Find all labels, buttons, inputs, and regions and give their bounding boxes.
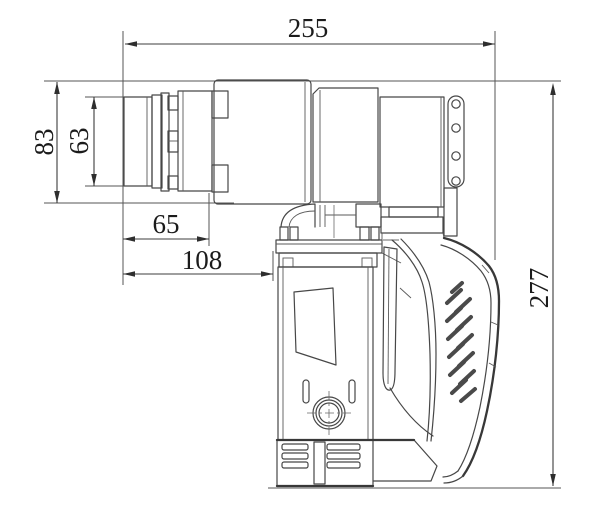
vent-hole-1 [452,100,460,108]
dimension-head-inner-height: 63 [64,97,97,186]
handle-web [390,388,433,436]
vent-slat-5 [327,453,360,459]
dim-label-head-length: 108 [182,245,223,275]
slot-left [303,380,309,403]
shell-tick-2 [491,322,498,325]
vent-slat-2 [282,453,308,459]
label-window [294,288,336,365]
dimension-overall-length: 255 [125,13,495,47]
arrow-up-icon [54,82,60,94]
drawing-canvas: 255 83 63 65 108 277 [0,0,600,516]
grip-slats [447,283,475,401]
motor-outline [380,97,444,207]
bolt-boss-4 [371,227,379,240]
vent-slat-4 [327,444,360,450]
handle [382,233,499,483]
coupling-section [313,88,378,202]
coupling-outline [313,88,378,202]
trigger-inner-line [388,249,389,384]
vent-hole-2 [452,124,460,132]
lower-body [278,267,373,440]
vent-hole-3 [452,152,460,160]
center-bar [314,442,325,484]
bolt-boss-3 [360,227,369,240]
step-notch-left [283,258,293,267]
motor-end-cap [448,96,464,187]
elbow-outer [281,204,315,227]
lower-body-outline [278,267,373,440]
grip-slat [449,344,463,357]
dimension-head-outer-height: 83 [29,82,60,203]
dim-label-head-outer-height: 83 [29,129,59,156]
dimension-head-length: 108 [123,245,273,277]
shell-tip-inner [443,471,458,477]
square-drive-outline [124,97,152,186]
arrow-down-icon [54,191,60,203]
grip-slat [461,389,475,401]
arrow-up-icon [550,83,556,95]
vent-slat-3 [282,462,308,468]
arrow-right-icon [197,236,209,242]
arrow-left-icon [123,271,135,277]
arrow-down-icon [550,474,556,486]
base-foot [373,440,437,481]
front-spindle-assembly [124,91,212,191]
slot-right [349,380,355,403]
arrow-up-icon [91,97,97,109]
trigger [383,247,397,390]
flange-band [276,240,382,253]
dim-label-head-inner-height: 63 [64,128,94,155]
bolt-boss-2 [290,227,298,240]
arrow-right-icon [261,271,273,277]
dimension-front-section-length: 65 [123,209,209,242]
dim-label-overall-height: 277 [524,268,554,309]
gear-housing [212,80,311,204]
handle-neck [381,217,443,233]
grip-slat [447,308,461,321]
grip-slat [450,362,464,375]
grip-slat [452,380,466,393]
bolt-boss-1 [280,227,288,240]
dimension-overall-height: 277 [524,83,556,486]
step-notch-right [362,258,372,267]
elbow-inner [289,211,315,227]
motor-step [389,207,438,217]
vent-hole-4 [452,177,460,185]
base-section [277,440,437,486]
arrow-down-icon [91,174,97,186]
arrow-right-icon [483,41,495,47]
technical-drawing-svg: 255 83 63 65 108 277 [0,0,600,516]
vent-slat-6 [327,462,360,468]
rear-panel [444,188,457,236]
dim-label-overall-length: 255 [288,13,329,43]
dim-label-front-section-length: 65 [153,209,180,239]
block-right [356,204,381,227]
grip-accent [400,288,411,298]
arrow-left-icon [123,236,135,242]
motor-housing [380,96,464,240]
arrow-left-icon [125,41,137,47]
vent-slat-1 [282,444,308,450]
shadow-diagonal [382,253,401,263]
grip-slat [448,326,462,339]
